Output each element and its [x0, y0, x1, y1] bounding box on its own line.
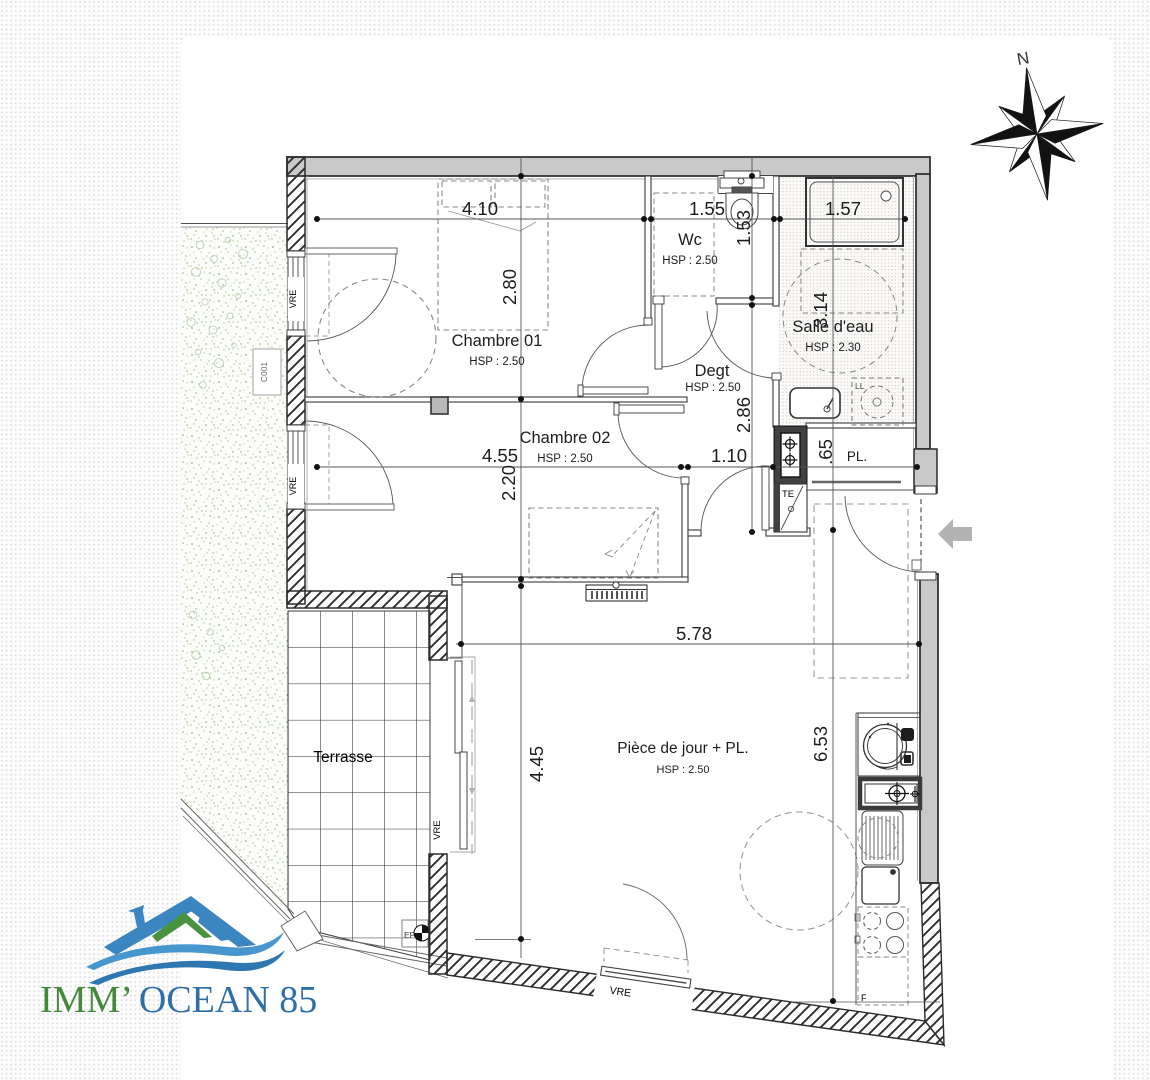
svg-text:Terrasse: Terrasse — [313, 749, 372, 766]
svg-text:HSP : 2.30: HSP : 2.30 — [805, 342, 860, 354]
svg-text:5.78: 5.78 — [676, 623, 712, 644]
svg-text:1.57: 1.57 — [825, 198, 861, 219]
svg-text:F: F — [861, 993, 867, 1003]
svg-text:.65: .65 — [815, 439, 836, 465]
svg-text:4.55: 4.55 — [482, 445, 518, 466]
svg-text:Chambre 02: Chambre 02 — [520, 429, 611, 447]
svg-text:Chambre 01: Chambre 01 — [452, 332, 543, 350]
svg-text:HSP : 2.50: HSP : 2.50 — [537, 453, 592, 465]
svg-text:VRE: VRE — [288, 477, 298, 496]
svg-text:1.53: 1.53 — [733, 210, 754, 246]
svg-text:HSP : 2.50: HSP : 2.50 — [685, 382, 740, 394]
svg-text:2.20: 2.20 — [498, 465, 519, 501]
svg-text:TE: TE — [782, 489, 794, 500]
svg-text:HSP : 2.50: HSP : 2.50 — [469, 356, 524, 368]
svg-text:PL.: PL. — [847, 449, 867, 464]
svg-text:2.80: 2.80 — [499, 269, 520, 305]
svg-text:6.53: 6.53 — [810, 726, 831, 762]
svg-text:VRE: VRE — [432, 820, 443, 840]
svg-text:4.10: 4.10 — [462, 198, 498, 219]
svg-text:1.55: 1.55 — [689, 198, 725, 219]
svg-text:LL: LL — [855, 381, 865, 391]
svg-text:Pièce de jour + PL.: Pièce de jour + PL. — [617, 740, 748, 757]
svg-text:Degt: Degt — [695, 362, 730, 380]
svg-text:HSP : 2.50: HSP : 2.50 — [662, 255, 717, 267]
svg-text:Salle d'eau: Salle d'eau — [792, 318, 873, 336]
svg-text:1.10: 1.10 — [711, 445, 747, 466]
svg-text:4.45: 4.45 — [526, 746, 547, 782]
svg-text:IMM’OCEAN 85: IMM’OCEAN 85 — [40, 979, 317, 1021]
svg-text:HSP : 2.50: HSP : 2.50 — [657, 764, 710, 776]
svg-text:Wc: Wc — [678, 231, 702, 249]
svg-text:2.86: 2.86 — [733, 397, 754, 433]
svg-text:C001: C001 — [259, 362, 269, 383]
svg-text:VRE: VRE — [288, 290, 298, 309]
